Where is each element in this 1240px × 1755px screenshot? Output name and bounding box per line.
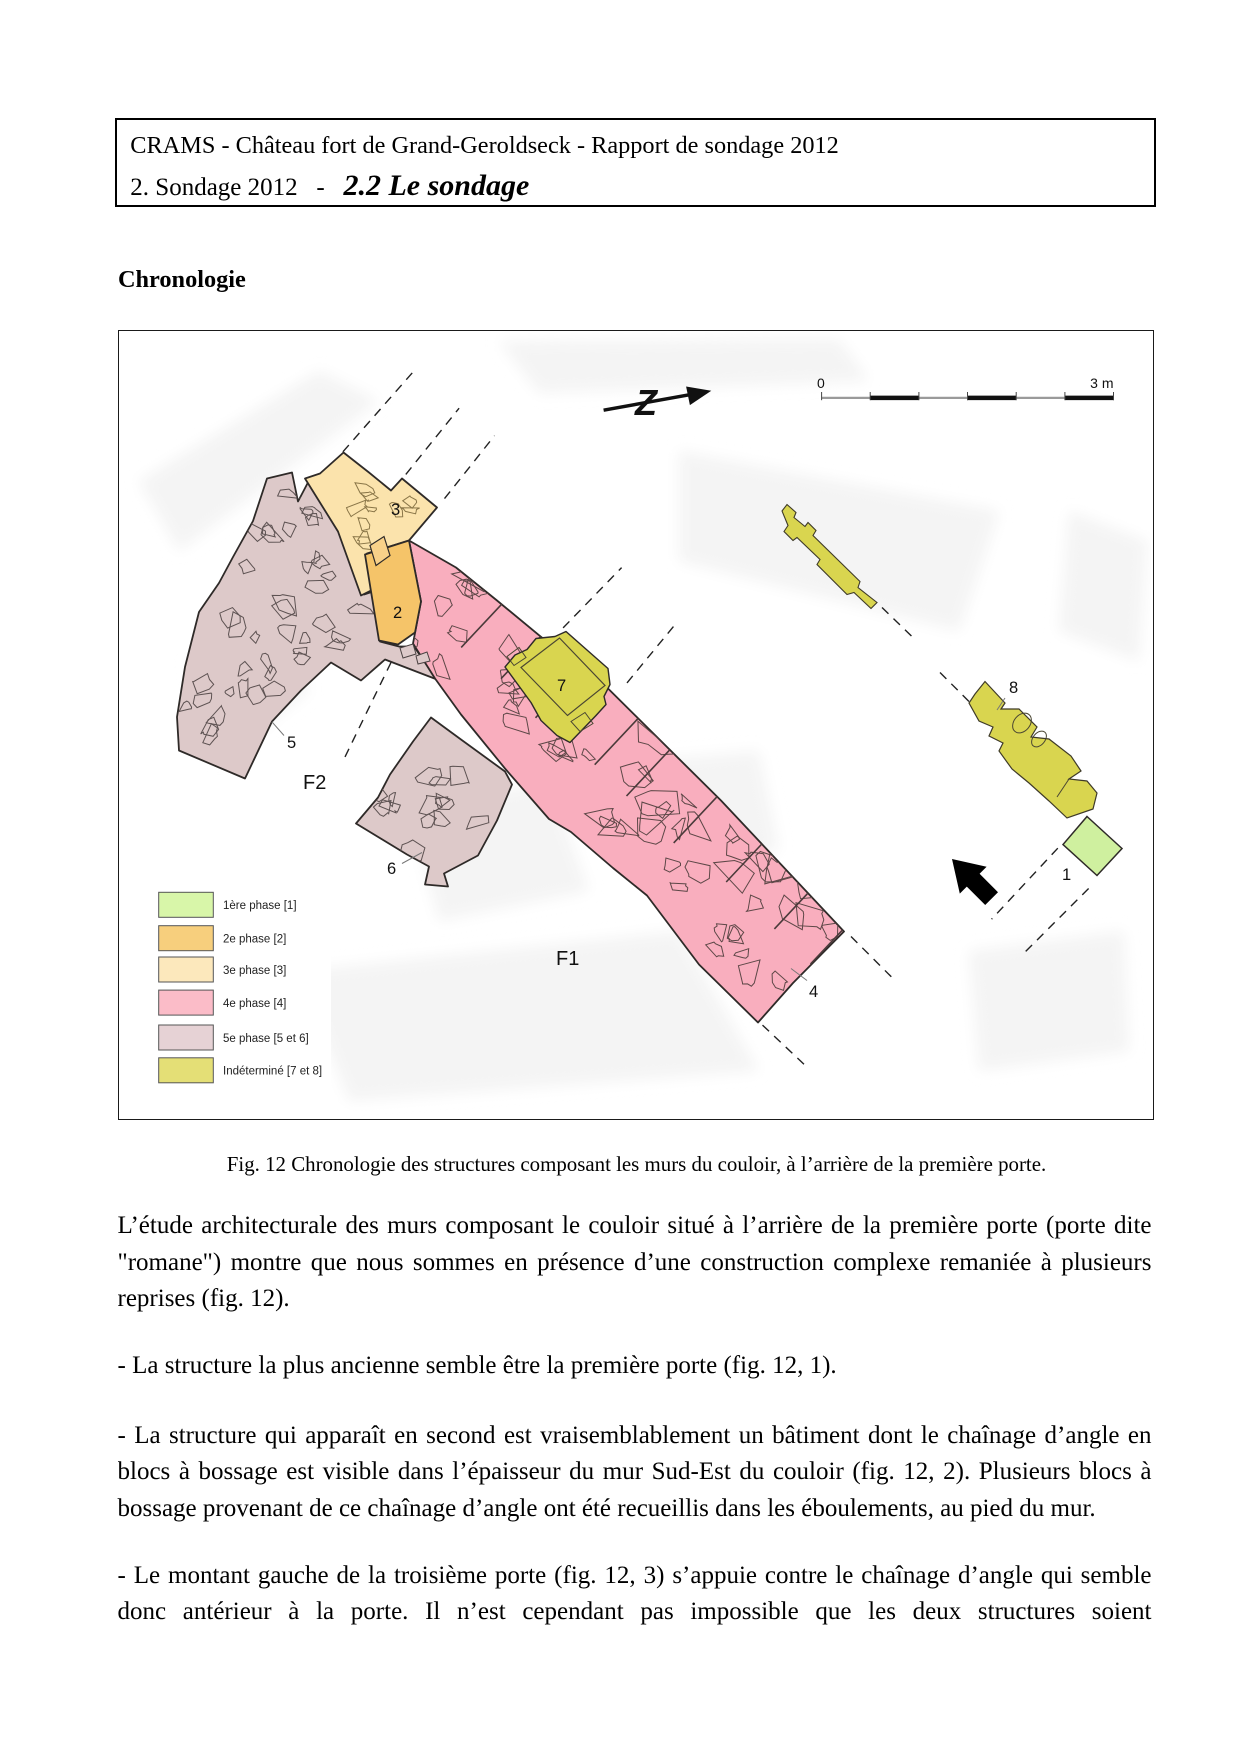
svg-text:2e phase [2]: 2e phase [2] — [223, 934, 286, 946]
svg-text:0: 0 — [817, 375, 825, 391]
svg-text:1ère phase [1]: 1ère phase [1] — [223, 900, 297, 912]
svg-text:6: 6 — [387, 860, 396, 878]
svg-text:3: 3 — [391, 501, 400, 519]
svg-text:Indéterminé [7 et 8]: Indéterminé [7 et 8] — [223, 1066, 322, 1078]
svg-text:2: 2 — [393, 604, 402, 622]
svg-text:Z: Z — [634, 382, 659, 423]
svg-text:8: 8 — [1009, 679, 1018, 697]
svg-text:5: 5 — [287, 734, 296, 752]
svg-text:1: 1 — [1062, 866, 1071, 884]
svg-text:3 m: 3 m — [1090, 375, 1113, 391]
svg-text:F1: F1 — [556, 948, 579, 970]
svg-text:7: 7 — [557, 677, 566, 695]
svg-text:F2: F2 — [303, 772, 326, 794]
svg-text:4e phase [4]: 4e phase [4] — [223, 998, 286, 1010]
svg-text:3e phase [3]: 3e phase [3] — [223, 965, 286, 977]
svg-text:4: 4 — [809, 983, 818, 1001]
svg-text:5e phase [5 et 6]: 5e phase [5 et 6] — [223, 1033, 309, 1045]
